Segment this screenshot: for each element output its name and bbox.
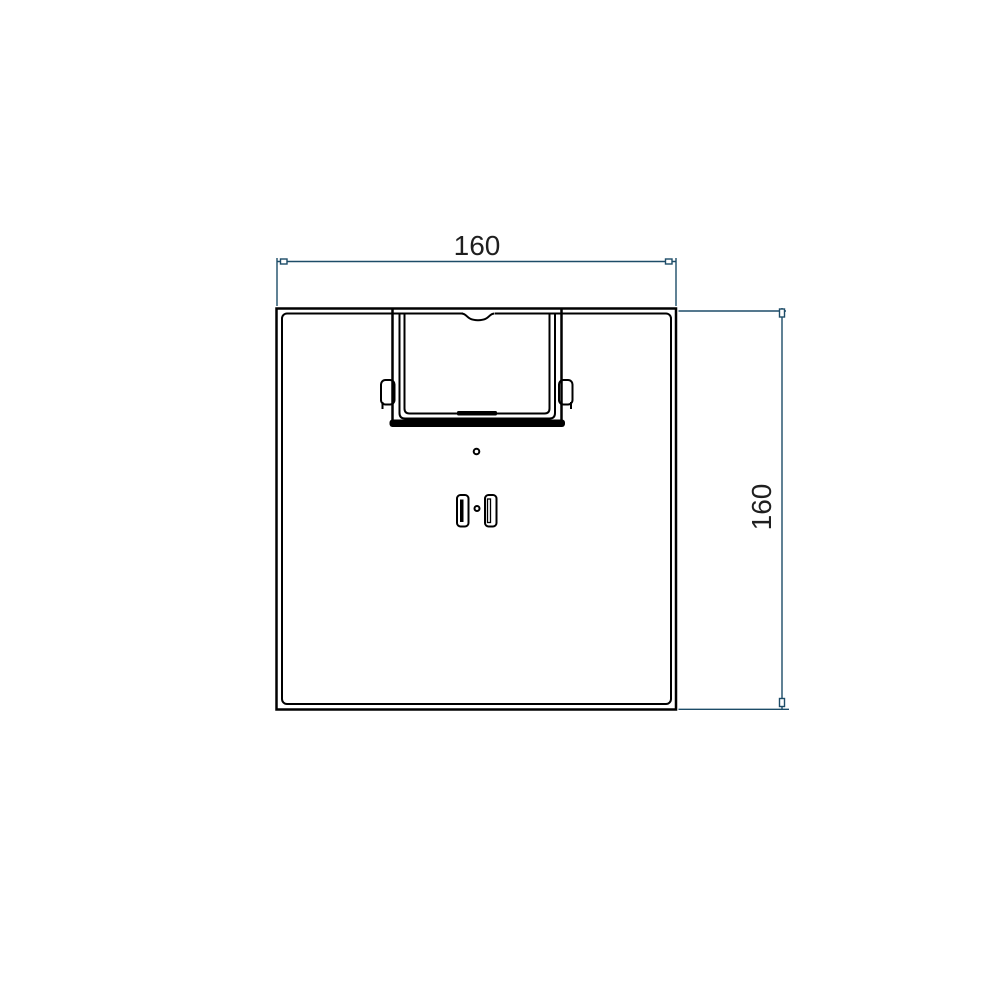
dimension-tick-height-top [780,309,785,317]
dimension-tick-width-right [666,259,673,264]
pilot-hole [474,449,480,455]
dimension-label-height: 160 [747,447,777,567]
technical-drawing-canvas [0,0,1000,1000]
dimension-label-width: 160 [417,231,537,261]
center-hole [475,506,480,511]
cutout-inner-wall [405,313,550,414]
cutout-bottom-dash [457,411,497,416]
part-inner-edge [282,314,671,705]
cutout-bottom-band [390,420,566,428]
part-outer-edge [277,309,677,710]
slot-right-inner-line [488,499,491,523]
drawing-sheet: 160 160 [0,0,1000,1000]
cutout-mid-wall [400,313,556,419]
dimension-tick-height-bottom [780,699,785,707]
slot-left-inner-bar [460,500,464,523]
dimension-tick-width-left [281,259,288,264]
